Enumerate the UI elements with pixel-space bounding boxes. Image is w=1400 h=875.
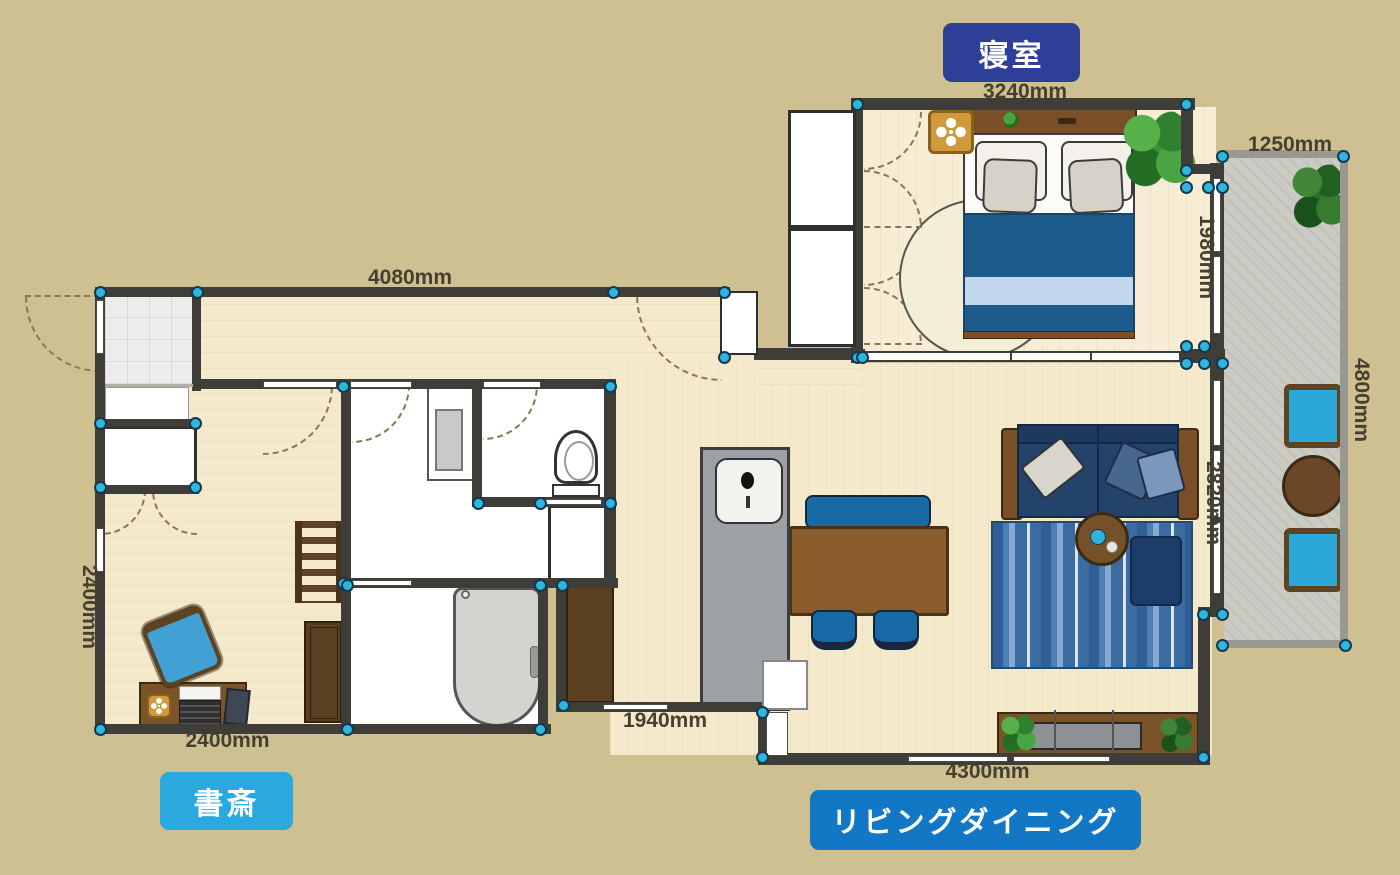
kitchen-appliance[interactable] — [762, 660, 808, 710]
vertex-handle-icon[interactable] — [556, 579, 569, 592]
vertex-handle-icon[interactable] — [1216, 608, 1229, 621]
vertex-handle-icon[interactable] — [1198, 357, 1211, 370]
wall — [97, 485, 199, 494]
vertex-handle-icon[interactable] — [856, 351, 869, 364]
faucet-icon — [741, 472, 754, 489]
entrance-tile-floor — [105, 296, 193, 384]
vertex-handle-icon[interactable] — [607, 286, 620, 299]
vertex-handle-icon[interactable] — [534, 579, 547, 592]
sofa-body — [1017, 424, 1179, 518]
vertex-handle-icon[interactable] — [534, 497, 547, 510]
vertex-handle-icon[interactable] — [1216, 181, 1229, 194]
dining-table[interactable] — [789, 526, 949, 616]
vertex-handle-icon[interactable] — [851, 98, 864, 111]
vertex-handle-icon[interactable] — [1198, 340, 1211, 353]
vertex-handle-icon[interactable] — [1180, 98, 1193, 111]
vertex-handle-icon[interactable] — [191, 286, 204, 299]
window-divider — [1010, 353, 1012, 360]
vertex-handle-icon[interactable] — [1197, 608, 1210, 621]
kitchen-sink — [715, 458, 783, 524]
dining-chair[interactable] — [811, 610, 857, 650]
plant-icon[interactable] — [1158, 715, 1194, 755]
toilet-tank — [552, 484, 600, 497]
tile-edge — [105, 384, 193, 387]
bedroom-window-south — [863, 351, 1181, 362]
vertex-handle-icon[interactable] — [718, 351, 731, 364]
balcony-wall-bottom — [1220, 640, 1348, 648]
balcony-chair[interactable] — [1284, 384, 1342, 448]
decor-box-icon[interactable] — [928, 110, 974, 154]
vertex-handle-icon[interactable] — [1339, 639, 1352, 652]
shelf-line — [310, 627, 338, 719]
wall — [556, 580, 566, 712]
wall — [97, 419, 199, 427]
toilet[interactable] — [554, 430, 598, 484]
vanity-sink — [435, 409, 463, 471]
dimension-balcony-length: 4800mm — [1349, 358, 1373, 442]
ladder-rack[interactable] — [295, 521, 343, 603]
vertex-handle-icon[interactable] — [756, 751, 769, 764]
petal-icon — [151, 698, 166, 713]
shelf-handle — [1058, 118, 1076, 124]
dimension-study-width: 2400mm — [175, 729, 280, 753]
vertex-handle-icon[interactable] — [94, 723, 107, 736]
closet-door-panel[interactable] — [788, 228, 856, 347]
vertex-handle-icon[interactable] — [1216, 357, 1229, 370]
wall — [95, 287, 105, 734]
vertex-handle-icon[interactable] — [472, 497, 485, 510]
wall — [472, 385, 482, 503]
door-band — [766, 712, 788, 756]
wall — [192, 296, 201, 391]
dimension-kitchen-width: 1940mm — [615, 709, 715, 733]
vertex-handle-icon[interactable] — [337, 380, 350, 393]
plant-icon[interactable] — [999, 713, 1037, 755]
bed-blanket — [963, 213, 1135, 333]
vertex-handle-icon[interactable] — [1216, 639, 1229, 652]
sofa-seam — [1097, 426, 1099, 516]
entrance-door-panel[interactable] — [720, 291, 758, 355]
vertex-handle-icon[interactable] — [557, 699, 570, 712]
closet-door-panel[interactable] — [788, 110, 856, 228]
window-divider — [1090, 353, 1092, 360]
door-band — [352, 580, 412, 586]
wall — [95, 724, 551, 734]
table-dot — [1090, 529, 1106, 545]
window — [1213, 380, 1221, 446]
dimension-living-width: 4300mm — [935, 760, 1040, 784]
drain-dot-icon — [461, 590, 470, 599]
bed-cushion — [1068, 158, 1125, 215]
door-band — [263, 381, 337, 388]
storage-nook-floor — [105, 387, 189, 421]
vertex-handle-icon[interactable] — [534, 723, 547, 736]
bed-headboard-shelf[interactable] — [961, 108, 1137, 135]
vertex-handle-icon[interactable] — [94, 286, 107, 299]
vertex-handle-icon[interactable] — [94, 417, 107, 430]
balcony-table[interactable] — [1282, 455, 1344, 517]
bathtub[interactable] — [453, 587, 541, 727]
faucet-stem — [746, 496, 750, 508]
decor-box-icon — [147, 694, 171, 718]
vertex-handle-icon[interactable] — [1216, 150, 1229, 163]
vertex-handle-icon[interactable] — [604, 380, 617, 393]
dimension-hallway-width: 4080mm — [350, 266, 470, 290]
vertex-handle-icon[interactable] — [604, 497, 617, 510]
vertex-handle-icon[interactable] — [341, 579, 354, 592]
bedroom-label-badge[interactable]: 寝室 — [943, 23, 1080, 82]
vertex-handle-icon[interactable] — [1202, 181, 1215, 194]
wall — [538, 583, 548, 734]
vertex-handle-icon[interactable] — [189, 481, 202, 494]
vertex-handle-icon[interactable] — [756, 706, 769, 719]
entry-door-dash — [25, 295, 100, 297]
door-band — [350, 381, 412, 388]
vertex-handle-icon[interactable] — [94, 481, 107, 494]
laptop-screen — [179, 686, 221, 700]
dimension-living-depth: 2820mm — [1201, 461, 1225, 545]
living-dining-label-badge[interactable]: リビングダイニング — [810, 790, 1141, 850]
vertex-handle-icon[interactable] — [1197, 751, 1210, 764]
toilet-seat — [564, 441, 594, 481]
balcony-chair[interactable] — [1284, 528, 1342, 592]
floor-cushion[interactable] — [1130, 536, 1182, 606]
sofa-cushion — [1020, 436, 1086, 500]
tv-stand — [1054, 710, 1114, 758]
shelf-plant-icon — [1003, 112, 1019, 128]
double-bed[interactable] — [963, 133, 1135, 333]
study-label-badge[interactable]: 書斎 — [160, 772, 293, 830]
bed-cushion — [982, 158, 1038, 214]
dimension-bedroom-depth: 1980mm — [1194, 215, 1218, 299]
door-band — [540, 499, 602, 505]
blanket-stripe — [965, 277, 1133, 305]
table-dot — [1106, 541, 1118, 553]
bookshelf[interactable] — [304, 621, 342, 723]
wall — [754, 348, 858, 360]
bedroom-closet-dash-1 — [864, 226, 922, 228]
vertex-handle-icon[interactable] — [1180, 181, 1193, 194]
dimension-bedroom-width: 3240mm — [960, 80, 1090, 104]
dining-bench[interactable] — [805, 495, 931, 529]
closet-box — [101, 426, 197, 489]
dimension-balcony-width: 1250mm — [1240, 133, 1340, 157]
bed-footboard — [963, 331, 1135, 339]
vertex-handle-icon[interactable] — [1180, 164, 1193, 177]
desk[interactable] — [139, 682, 247, 726]
dining-chair[interactable] — [873, 610, 919, 650]
laptop-keyboard — [179, 700, 221, 726]
vertex-handle-icon[interactable] — [189, 417, 202, 430]
bedroom-closet-dash-2 — [864, 343, 922, 345]
balcony-wall-right — [1340, 150, 1348, 648]
wall — [341, 385, 351, 734]
tablet — [223, 688, 251, 726]
sofa[interactable] — [1001, 424, 1195, 520]
petal-icon — [936, 118, 966, 147]
laundry-box — [548, 505, 610, 583]
door-band — [483, 381, 541, 388]
dimension-study-depth: 2400mm — [77, 565, 101, 649]
side-table[interactable] — [1075, 512, 1129, 566]
vertex-handle-icon[interactable] — [1180, 340, 1193, 353]
vertex-handle-icon[interactable] — [1337, 150, 1350, 163]
hallway-floor-east — [756, 359, 862, 385]
vertex-handle-icon[interactable] — [718, 286, 731, 299]
window — [96, 300, 104, 354]
refrigerator-cabinet[interactable] — [566, 581, 614, 703]
floor-plan: 3240mm 1250mm 4080mm 1980mm 4800mm 2820m… — [0, 0, 1400, 875]
wall — [604, 379, 616, 587]
vertex-handle-icon[interactable] — [341, 723, 354, 736]
vertex-handle-icon[interactable] — [1180, 357, 1193, 370]
wall — [1198, 610, 1210, 757]
